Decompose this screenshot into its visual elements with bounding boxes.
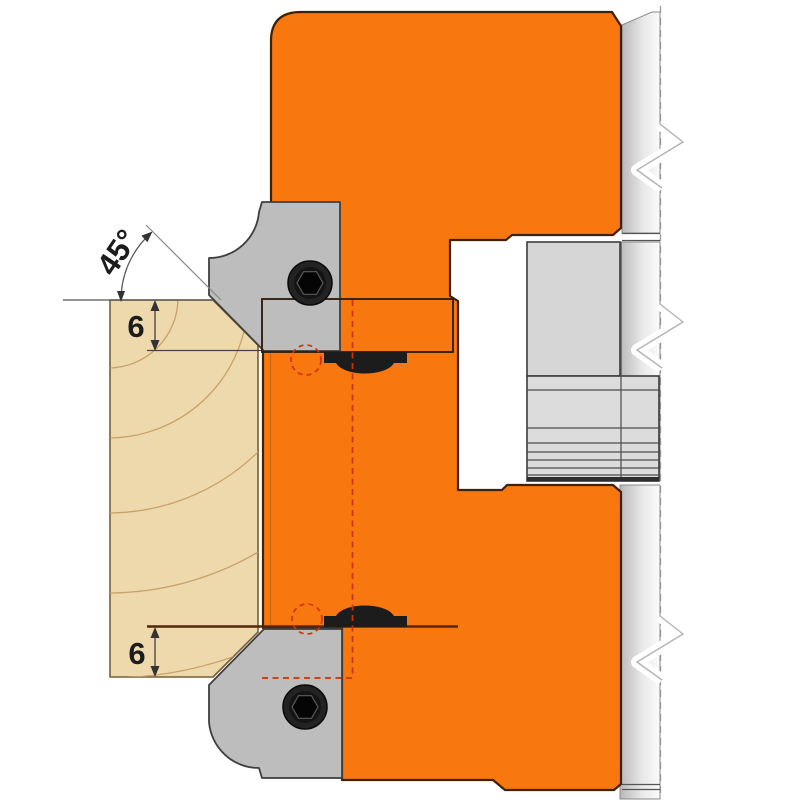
- hex-socket-icon: [297, 272, 323, 295]
- hex-socket-icon: [292, 696, 318, 719]
- shaft-lower-section: [620, 485, 660, 799]
- cutterhead-diagram: 45° 6 6: [0, 0, 800, 800]
- shaft-upper-section: [622, 12, 660, 233]
- hex-socket-screw-top: [288, 261, 332, 305]
- depth-label-bottom: 6: [128, 636, 145, 671]
- angle-dimension-45: 45°: [63, 223, 221, 302]
- drawing-canvas: 45° 6 6: [0, 0, 800, 800]
- shaft-joint-lines-top: [622, 234, 660, 241]
- depth-label-top: 6: [127, 309, 144, 344]
- hex-socket-screw-bottom: [283, 685, 327, 729]
- angle-label: 45°: [90, 223, 145, 281]
- hub-block: [527, 242, 620, 376]
- spacer-dark-band: [527, 477, 659, 482]
